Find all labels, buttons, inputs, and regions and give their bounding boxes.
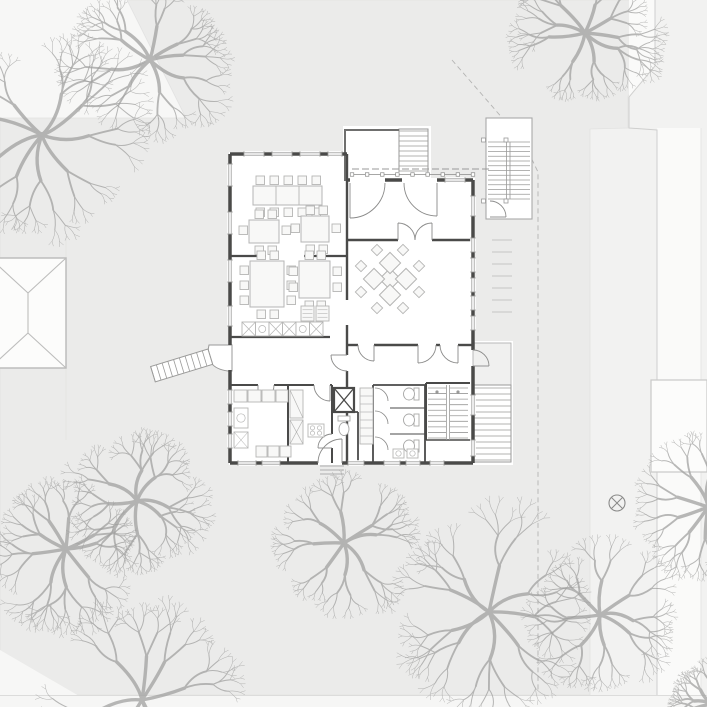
window xyxy=(227,390,233,404)
toilet xyxy=(338,416,350,436)
toilet xyxy=(404,414,420,426)
site-plan-drawing xyxy=(0,0,707,707)
stair-walkline-dot xyxy=(435,390,438,393)
kitchen-counter xyxy=(248,390,261,402)
kitchen-counter xyxy=(262,390,275,402)
east-terrace-landing xyxy=(473,343,511,385)
window xyxy=(470,395,476,415)
window xyxy=(430,460,444,466)
toilet xyxy=(404,388,420,400)
window xyxy=(470,278,476,292)
stove xyxy=(308,424,324,437)
kitchen-stool xyxy=(280,446,291,457)
site-plan-canvas xyxy=(0,0,707,707)
rail-post xyxy=(504,138,508,142)
prep-table xyxy=(234,432,248,448)
window xyxy=(227,164,233,186)
kitchen-stool xyxy=(268,446,279,457)
window xyxy=(262,460,280,466)
window xyxy=(406,460,420,466)
wc-sink xyxy=(407,449,418,458)
paved-terrace-east xyxy=(651,380,707,472)
stacked-chairs xyxy=(301,306,314,321)
window xyxy=(470,296,476,310)
kitchen-sink xyxy=(234,408,248,428)
window xyxy=(227,306,233,326)
window xyxy=(470,316,476,330)
window xyxy=(384,460,400,466)
rail-post xyxy=(504,199,508,203)
window xyxy=(445,177,465,183)
window xyxy=(470,238,476,252)
window xyxy=(227,412,233,426)
window xyxy=(328,151,342,157)
annex-hip-roof xyxy=(0,258,66,368)
entry-porch-footprint xyxy=(343,126,431,182)
window xyxy=(470,258,476,272)
buffet-counter xyxy=(242,322,323,336)
window xyxy=(227,212,233,234)
window xyxy=(348,460,364,466)
rail-post xyxy=(482,138,486,142)
kitchen-stool xyxy=(256,446,267,457)
stair-walkline-dot xyxy=(456,390,459,393)
window xyxy=(227,260,233,282)
terrace-railing xyxy=(350,173,475,177)
window xyxy=(238,460,256,466)
pantry-shelf xyxy=(290,390,303,418)
wc-sink xyxy=(393,449,404,458)
locker-cabinet xyxy=(360,388,373,444)
window xyxy=(300,151,320,157)
stacked-chairs xyxy=(316,306,329,321)
window xyxy=(470,196,476,216)
kitchen-counter xyxy=(234,390,247,402)
elevator-shaft xyxy=(334,388,354,412)
window xyxy=(470,440,476,456)
kitchen-fridge xyxy=(276,390,288,402)
window xyxy=(272,151,292,157)
rail-post xyxy=(482,199,486,203)
window xyxy=(227,434,233,448)
external-stair-tower xyxy=(486,118,532,219)
pantry-shelf xyxy=(290,420,303,444)
window xyxy=(244,151,264,157)
